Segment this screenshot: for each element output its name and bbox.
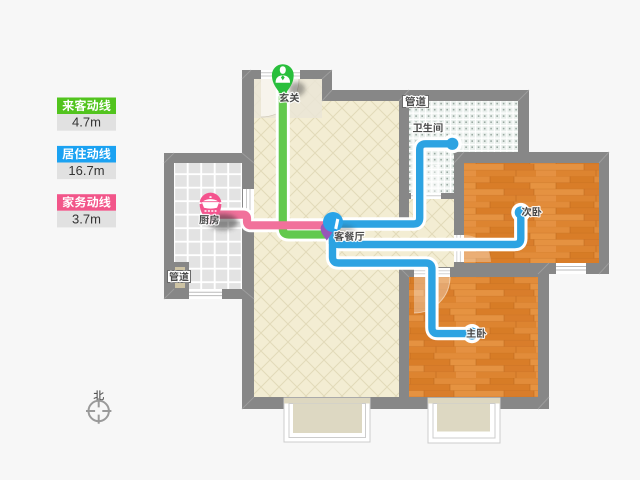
svg-text:4.7m: 4.7m — [72, 115, 101, 130]
svg-text:3.7m: 3.7m — [72, 211, 101, 226]
svg-text:16.7m: 16.7m — [68, 163, 104, 178]
